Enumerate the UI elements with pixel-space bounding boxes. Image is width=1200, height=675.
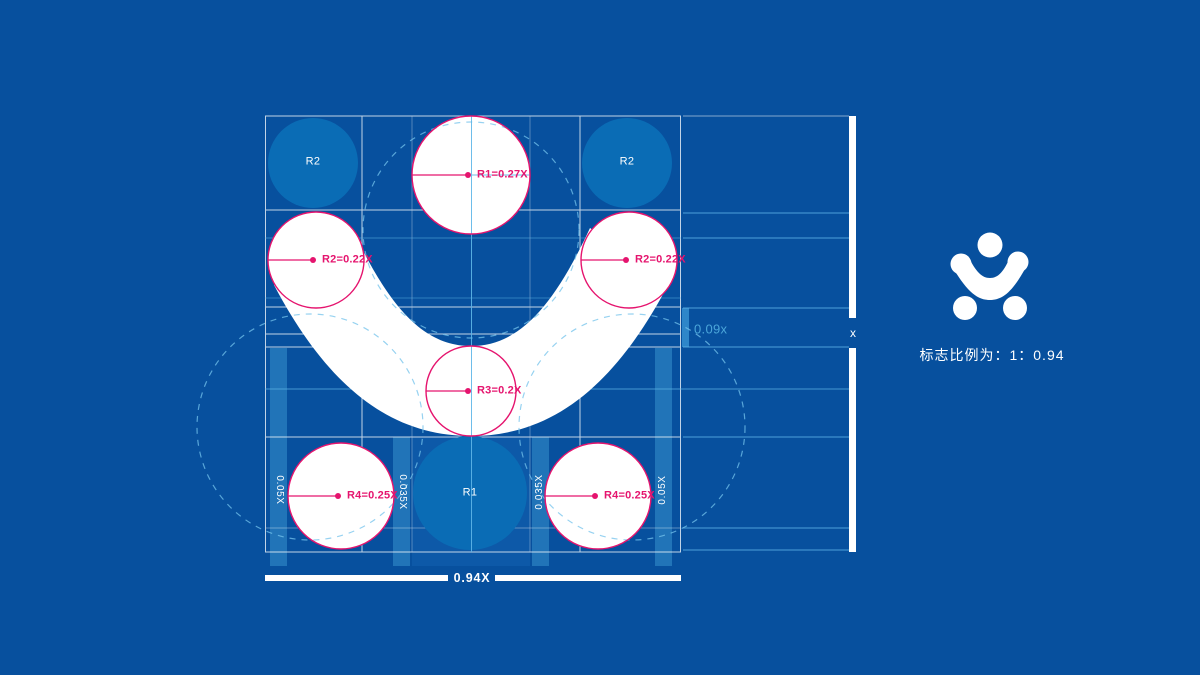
dimension-label-bottom-width: 0.94X	[454, 572, 491, 585]
dimension-label-right-outer: 0.05X	[658, 475, 668, 504]
logo-ratio-caption: 标志比例为：1：0.94	[919, 348, 1064, 362]
strip-right-outer	[655, 348, 672, 566]
logo-mark	[951, 233, 1029, 321]
dimension-label-left-inner: 0.035X	[397, 474, 407, 509]
width-bar-right	[495, 575, 681, 581]
logo-mark-bottom-right-dot	[1003, 296, 1027, 320]
radius-annotation-r1: R1=0.27X	[477, 170, 528, 181]
radius-annotation-r4-left: R4=0.25X	[347, 491, 398, 502]
dimension-label-total-height: x	[850, 327, 856, 339]
construction-diagram	[0, 0, 1200, 675]
logo-mark-top-dot	[978, 233, 1003, 258]
gap-marker	[682, 308, 689, 347]
logo-mark-right-bulb	[1008, 252, 1029, 273]
logo-mark-center-bulb	[980, 280, 1000, 300]
radius-annotation-r2-right: R2=0.22X	[635, 255, 686, 266]
x-height-bar-bottom	[849, 348, 856, 552]
dimension-label-gap: 0.09x	[694, 323, 727, 336]
logo-mark-left-bulb	[951, 254, 972, 275]
reference-label-r2-left: R2	[306, 157, 321, 168]
reference-label-r2-right: R2	[620, 157, 635, 168]
dimension-label-right-inner: 0.035X	[535, 474, 545, 509]
radius-annotation-r3: R3=0.2X	[477, 386, 522, 397]
reference-label-r1-bottom: R1	[463, 488, 478, 499]
width-bar-left	[265, 575, 448, 581]
radius-annotation-r2-left: R2=0.22X	[322, 255, 373, 266]
strip-left-outer	[270, 348, 287, 566]
blueprint-page: R2 R2 R1 R1=0.27X R2=0.22X R2=0.22X R3=0…	[0, 0, 1200, 675]
dimension-label-left-outer: 0.05X	[274, 475, 284, 504]
logo-mark-bottom-left-dot	[953, 296, 977, 320]
radius-annotation-r4-right: R4=0.25X	[604, 491, 655, 502]
x-height-bar-top	[849, 116, 856, 318]
